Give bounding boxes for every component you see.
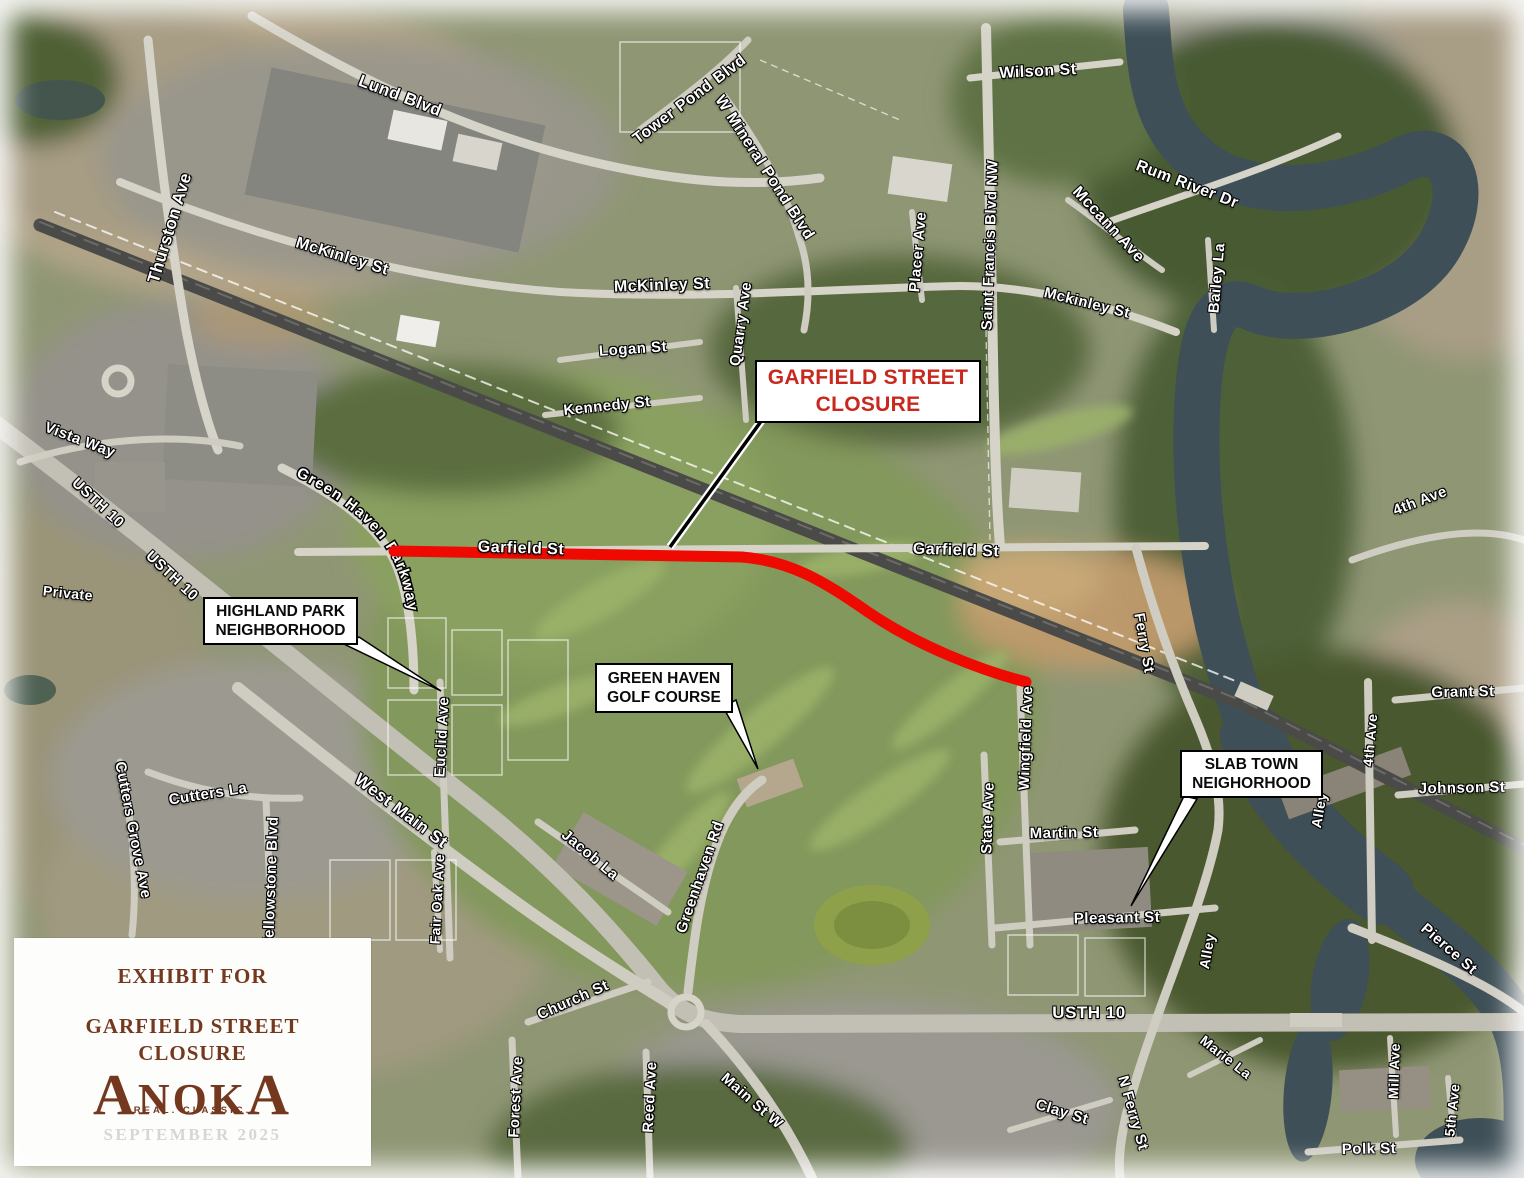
street-label-usth-10: USTH 10 (1052, 1003, 1125, 1023)
street-label-wingfield-ave: Wingfield Ave (1016, 686, 1037, 791)
anoka-logo-tagline: REAL. CLASSIC. (134, 1107, 251, 1116)
street-label-johnson-st: Johnson St (1419, 779, 1506, 798)
street-label-martin-st: Martin St (1030, 824, 1099, 842)
bridge (1290, 1013, 1342, 1027)
exhibit-legend-panel: EXHIBIT FOR GARFIELD STREET CLOSURE ANOK… (14, 938, 371, 1166)
callout-slab-town-neighorhood: SLAB TOWN NEIGHORHOOD (1180, 750, 1323, 798)
street-label-mill-ave: Mill Ave (1385, 1043, 1403, 1099)
exhibit-date: SEPTEMBER 2025 (14, 1125, 371, 1145)
callout-highland-park-neighborhood: HIGHLAND PARK NEIGHBORHOOD (203, 597, 358, 645)
anoka-logo: ANOKA REAL. CLASSIC. (93, 1080, 292, 1120)
exhibit-subject-line: CLOSURE (14, 1040, 371, 1067)
callout-line: GOLF COURSE (597, 688, 731, 707)
street-label-mckinley-st: McKinley St (614, 275, 711, 296)
callout-line: HIGHLAND PARK (205, 602, 356, 621)
street-label-garfield-st: Garfield St (478, 538, 565, 559)
logo-letter: A (93, 1062, 138, 1127)
map-exhibit: Green Haven Parkway Lund BlvdThurston Av… (0, 0, 1524, 1178)
callout-line: GREEN HAVEN (597, 669, 731, 688)
street-label-pleasant-st: Pleasant St (1074, 909, 1161, 928)
street-label-garfield-st: Garfield St (913, 540, 1000, 561)
callout-green-haven-golf-course: GREEN HAVEN GOLF COURSE (595, 663, 733, 713)
callout-line: NEIGHBORHOOD (205, 621, 356, 640)
callout-line: CLOSURE (757, 392, 979, 418)
exhibit-subject: GARFIELD STREET CLOSURE (14, 1013, 371, 1068)
callout-line: GARFIELD STREET (757, 365, 979, 391)
street-label-state-ave: State Ave (978, 782, 997, 854)
exhibit-subject-line: GARFIELD STREET (14, 1013, 371, 1040)
callout-line: NEIGHORHOOD (1182, 774, 1321, 793)
logo-letter: A (247, 1062, 292, 1127)
logo-letter: NOK (138, 1075, 247, 1124)
street-label-polk-st: Polk St (1342, 1140, 1397, 1158)
callout-line: SLAB TOWN (1182, 755, 1321, 774)
street-label-grant-st: Grant St (1431, 683, 1494, 701)
callout-garfield-street-closure: GARFIELD STREET CLOSURE (755, 360, 981, 423)
exhibit-title: EXHIBIT FOR (14, 964, 371, 989)
